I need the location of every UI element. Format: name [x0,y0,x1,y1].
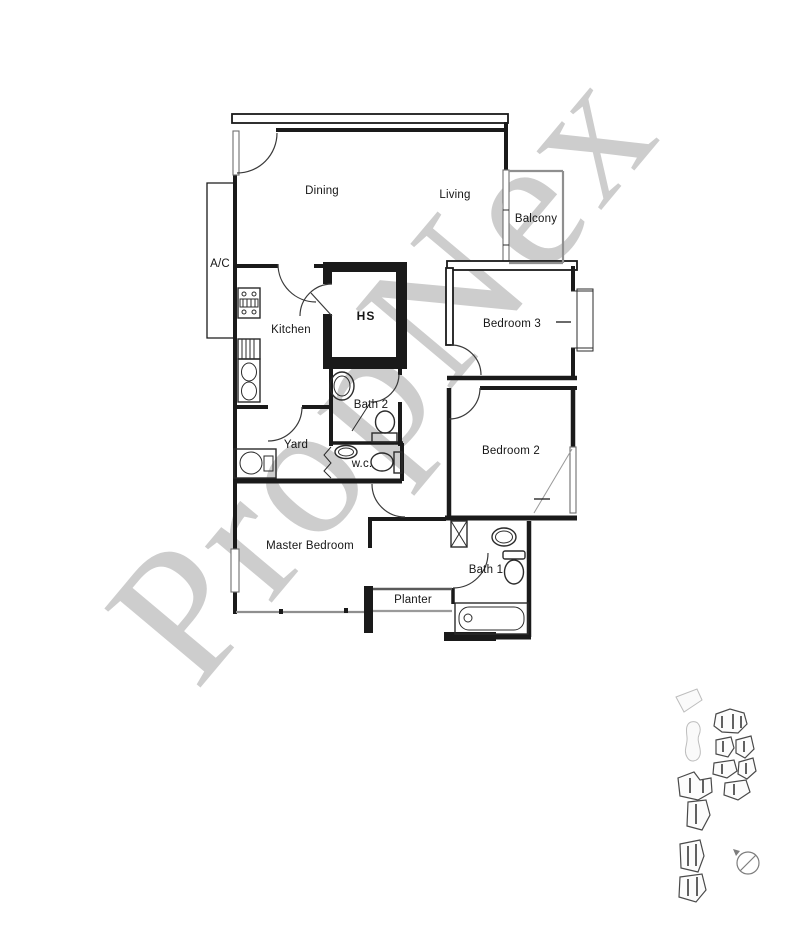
wall-tick [279,609,283,614]
window-opening-line [534,449,572,513]
hs-wall [396,262,407,369]
yard-fixtures [234,449,276,478]
site-plan-building [678,772,712,800]
bedroom3-door-swing [451,345,481,375]
walls [231,114,593,641]
stove-burner [252,292,256,296]
site-green-area [685,722,700,761]
room-label-kitchen: Kitchen [271,324,311,336]
bath2-door-swing [371,374,399,402]
floor-plan-drawing [0,0,800,939]
wash-basin-bowl [496,531,513,543]
master-door-swing [372,484,405,517]
room-label-bath2: Bath 2 [354,399,388,411]
room-label-bedroom3: Bedroom 3 [483,318,541,330]
room-label-balcony: Balcony [515,213,557,225]
room-label-planter: Planter [394,594,432,606]
hs-door-leaf [311,293,332,316]
wall-tick [344,608,348,613]
kitchen-door-swing [278,264,316,302]
toilet-tank [372,433,397,442]
site-plan-building [736,736,754,758]
stove-icon [238,288,260,318]
site-plan-building [687,800,710,830]
site-open-space [676,689,702,712]
hs-wall [323,314,332,364]
yard-door-swing [268,407,302,441]
sink-bowl [242,382,257,400]
site-plan [676,689,759,902]
toilet-icon [371,453,393,471]
site-plan-building [679,874,706,902]
toilet-icon [505,560,524,584]
site-plan-building [738,758,756,779]
bathtub-drain [464,614,472,622]
room-label-yard: Yard [284,439,308,451]
site-plan-building [680,840,704,872]
washing-machine-panel [264,456,273,471]
entrance-door-leaf [233,131,239,175]
sink-bowl [242,363,257,381]
hs-wall [323,262,407,272]
room-label-ac-ledge: A/C [210,258,230,270]
planter-wall [364,586,373,633]
toilet-icon [376,411,395,433]
room-label-dining: Dining [305,185,339,197]
bay-window [577,289,593,351]
stove-burner [252,310,256,314]
wall-segment [446,268,453,345]
counter-icon [238,339,260,359]
site-plan-building [724,780,750,800]
wash-basin-bowl [334,376,350,396]
site-plan-building [714,709,747,733]
room-label-wc: w.c. [352,458,373,470]
site-plan-building [716,737,734,757]
kitchen-fixtures [238,288,260,402]
wall-segment [232,114,508,123]
compass-icon [733,849,759,874]
stove-burner [242,292,246,296]
floor-plan-page: PropNex [0,0,800,939]
hs-wall [323,357,407,369]
room-label-master-bedroom: Master Bedroom [266,540,354,552]
compass-needle [740,855,756,871]
wc-folding-door [324,447,331,478]
hs-wall [323,262,332,284]
bathtub-basin [459,607,524,630]
room-label-bedroom2: Bedroom 2 [482,445,540,457]
room-label-hs: HS [357,309,376,323]
window [570,447,576,513]
wash-basin-bowl [339,448,354,456]
washing-machine-drum [240,452,262,474]
window [231,549,239,592]
site-plan-building [713,760,737,778]
balcony-sliding-door [503,170,509,263]
toilet-tank [503,551,525,559]
bedroom2-door-swing [449,388,480,419]
compass-north-arrow [733,849,740,856]
bath1-fixtures [451,521,528,634]
room-label-living: Living [439,189,470,201]
room-label-bath1: Bath 1 [469,564,503,576]
entrance-door-swing [237,133,277,173]
stove-burner [242,310,246,314]
